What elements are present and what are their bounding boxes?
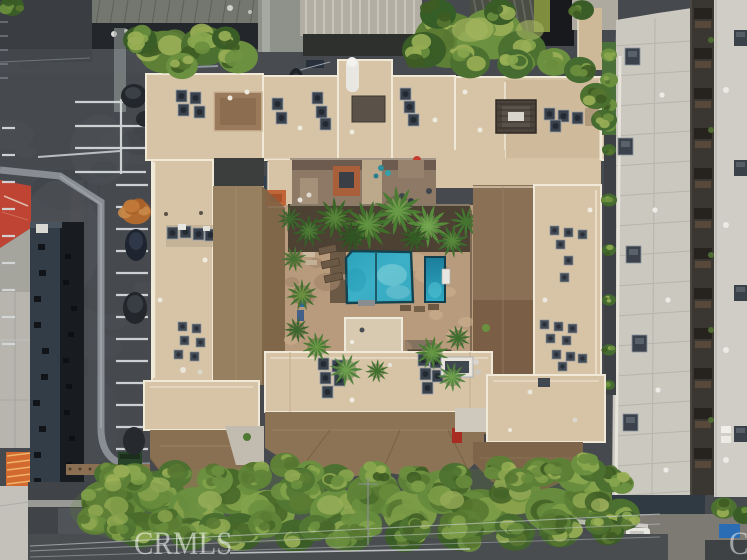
svg-text:CR: CR <box>729 524 747 560</box>
svg-text:CRMLS: CRMLS <box>134 524 232 560</box>
